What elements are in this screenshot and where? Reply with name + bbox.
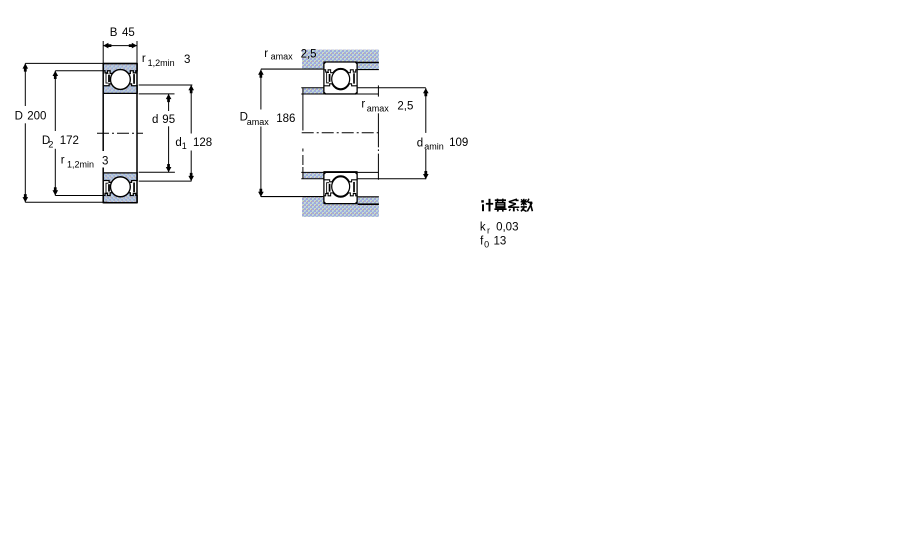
- svg-text:186: 186: [276, 113, 295, 125]
- svg-text:128: 128: [193, 137, 212, 149]
- svg-text:0: 0: [484, 240, 489, 250]
- svg-text:1,2min: 1,2min: [67, 159, 94, 169]
- svg-text:45: 45: [122, 27, 135, 39]
- svg-text:1: 1: [182, 141, 187, 151]
- svg-text:2,5: 2,5: [301, 49, 317, 61]
- svg-text:200: 200: [27, 111, 46, 123]
- svg-text:95: 95: [162, 114, 175, 126]
- svg-text:r: r: [361, 99, 365, 111]
- svg-text:2: 2: [48, 139, 53, 149]
- svg-text:0,03: 0,03: [496, 221, 518, 233]
- svg-text:13: 13: [494, 235, 507, 247]
- svg-text:r: r: [142, 53, 146, 65]
- svg-text:amax: amax: [247, 117, 270, 127]
- svg-text:109: 109: [449, 137, 468, 149]
- svg-text:3: 3: [184, 54, 190, 66]
- svg-text:172: 172: [60, 135, 79, 147]
- svg-text:amax: amax: [367, 104, 390, 114]
- svg-text:3: 3: [102, 155, 108, 167]
- svg-text:D: D: [15, 111, 23, 123]
- svg-text:amax: amax: [271, 51, 294, 61]
- svg-text:2,5: 2,5: [397, 100, 413, 112]
- svg-text:r: r: [264, 48, 268, 60]
- svg-text:d: d: [152, 114, 158, 126]
- svg-text:d: d: [417, 138, 423, 150]
- svg-text:r: r: [61, 154, 65, 166]
- svg-text:k: k: [480, 221, 486, 233]
- svg-text:B: B: [110, 27, 118, 39]
- svg-text:r: r: [487, 225, 490, 235]
- svg-text:amin: amin: [424, 142, 444, 152]
- svg-text:1,2min: 1,2min: [148, 58, 175, 68]
